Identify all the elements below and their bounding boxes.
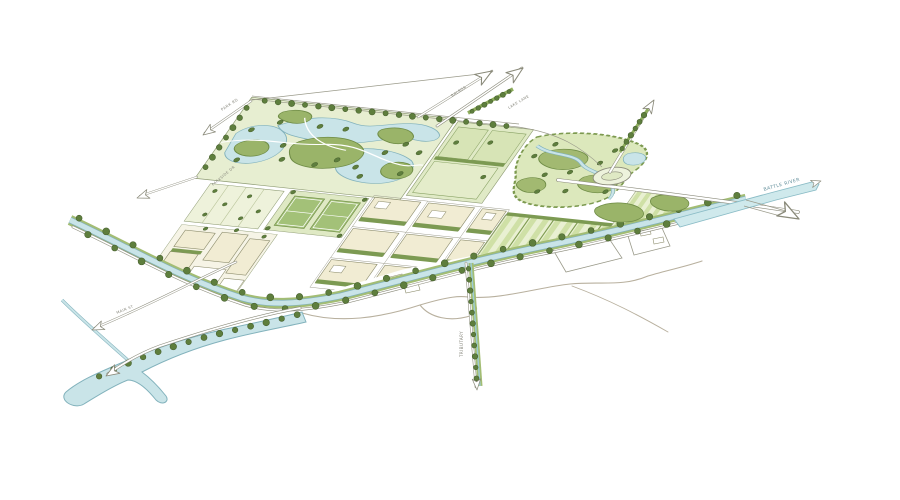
tree-icon <box>186 339 192 345</box>
tree-icon <box>329 105 335 111</box>
tree-icon <box>734 192 741 199</box>
tree-icon <box>289 100 295 106</box>
tree-icon <box>275 99 281 105</box>
tree-icon <box>469 310 474 315</box>
tree-icon <box>155 349 161 355</box>
tree-icon <box>267 294 274 301</box>
tree-icon <box>628 132 634 138</box>
tree-icon <box>294 312 300 318</box>
tree-icon <box>239 289 245 295</box>
tree-icon <box>436 116 442 122</box>
tree-icon <box>76 215 82 221</box>
map-label-road-sw: MAIN ST <box>116 304 135 315</box>
tree-icon <box>201 334 207 340</box>
tree-icon <box>209 154 215 160</box>
tree-icon <box>482 102 487 107</box>
flow-arrow-icon <box>475 66 496 85</box>
map-label-tributary: TRIBUTARY <box>459 331 464 358</box>
tree-icon <box>423 115 428 120</box>
tree-icon <box>170 343 177 350</box>
tree-icon <box>356 108 362 114</box>
tree-icon <box>663 221 670 228</box>
map-label-road-n2: LAKE LANE <box>507 94 530 110</box>
tree-icon <box>605 235 612 242</box>
tree-icon <box>559 234 566 241</box>
tree-icon <box>500 92 505 97</box>
tree-icon <box>244 105 249 110</box>
tree-icon <box>312 302 319 309</box>
tree-icon <box>575 241 582 248</box>
tree-icon <box>489 99 493 103</box>
tree-icon <box>459 267 465 273</box>
tree-icon <box>450 117 456 123</box>
battle-river <box>674 182 819 227</box>
tree-icon <box>441 260 448 267</box>
tree-icon <box>474 365 479 370</box>
tree-icon <box>138 258 145 265</box>
tree-icon <box>517 254 524 261</box>
map-label-road-n1: BALBOA <box>450 85 467 98</box>
tree-icon <box>383 275 390 282</box>
tree-icon <box>262 98 267 103</box>
tree-icon <box>400 282 407 289</box>
tree-icon <box>237 115 243 121</box>
tree-icon <box>296 293 303 300</box>
tree-icon <box>216 145 222 151</box>
flow-arrow-icon <box>506 63 527 83</box>
tree-icon <box>279 316 285 322</box>
tree-icon <box>494 96 499 101</box>
tree-icon <box>624 139 629 144</box>
river-band <box>674 182 819 227</box>
tree-icon <box>343 107 348 112</box>
tree-icon <box>223 135 228 140</box>
tree-icon <box>490 122 496 128</box>
tree-icon <box>430 274 437 281</box>
tree-icon <box>342 297 349 304</box>
flow-arrow-icon <box>135 190 150 203</box>
tree-icon <box>470 109 474 113</box>
tree-icon <box>466 266 471 271</box>
tree-icon <box>470 321 476 327</box>
tree-icon <box>467 288 473 294</box>
tree-icon <box>230 125 236 131</box>
tree-icon <box>193 284 199 290</box>
tree-icon <box>130 242 137 249</box>
tree-icon <box>383 111 388 116</box>
tree-icon <box>488 260 495 267</box>
tree-icon <box>409 113 415 119</box>
tree-icon <box>476 106 481 111</box>
tree-icon <box>637 119 642 124</box>
tree-icon <box>413 268 419 274</box>
flow-arrow-icon <box>777 202 803 226</box>
tree-icon <box>112 245 118 251</box>
map-label-road-nw: PARK RD <box>220 97 239 112</box>
tree-icon <box>96 374 102 380</box>
tree-icon <box>302 102 307 107</box>
tree-icon <box>85 231 92 238</box>
masterplan-svg: PARK RDPARKSIDE DRBALBOALAKE LANEMAIN ST… <box>0 0 900 500</box>
tree-icon <box>500 246 506 252</box>
tree-icon <box>211 279 218 286</box>
tree-icon <box>641 112 647 118</box>
tree-icon <box>183 267 190 274</box>
tree-icon <box>472 354 478 360</box>
masterplan-canvas: PARK RDPARKSIDE DRBALBOALAKE LANEMAIN ST… <box>0 0 900 500</box>
tree-icon <box>529 239 536 246</box>
tree-icon <box>103 228 110 235</box>
tree-icon <box>646 214 653 221</box>
tree-icon <box>221 294 228 301</box>
tree-icon <box>620 146 625 151</box>
tree-icon <box>396 112 402 118</box>
tree-icon <box>477 120 483 126</box>
tree-icon <box>248 323 254 329</box>
river-corridor <box>62 300 306 406</box>
tree-icon <box>157 255 163 261</box>
tree-icon <box>504 123 509 128</box>
tree-icon <box>471 253 478 260</box>
tree-icon <box>165 271 172 278</box>
tree-icon <box>203 165 208 170</box>
tree-icon <box>372 290 378 296</box>
tree-icon <box>369 109 375 115</box>
tree-icon <box>588 228 594 234</box>
tree-icon <box>471 332 476 337</box>
tree-icon <box>464 119 469 124</box>
tree-icon <box>469 299 474 304</box>
tributary-corridor <box>466 263 480 387</box>
tree-icon <box>354 282 361 289</box>
tree-icon <box>263 319 270 326</box>
tree-icon <box>547 248 553 254</box>
tree-icon <box>251 303 258 310</box>
tree-icon <box>232 327 238 333</box>
tree-icon <box>316 103 322 109</box>
tree-icon <box>633 126 638 131</box>
tree-icon <box>326 290 332 296</box>
tree-icon <box>216 330 223 337</box>
tree-icon <box>467 277 472 282</box>
tree-icon <box>472 343 477 348</box>
tree-icon <box>635 228 641 234</box>
tree-icon <box>507 89 511 93</box>
